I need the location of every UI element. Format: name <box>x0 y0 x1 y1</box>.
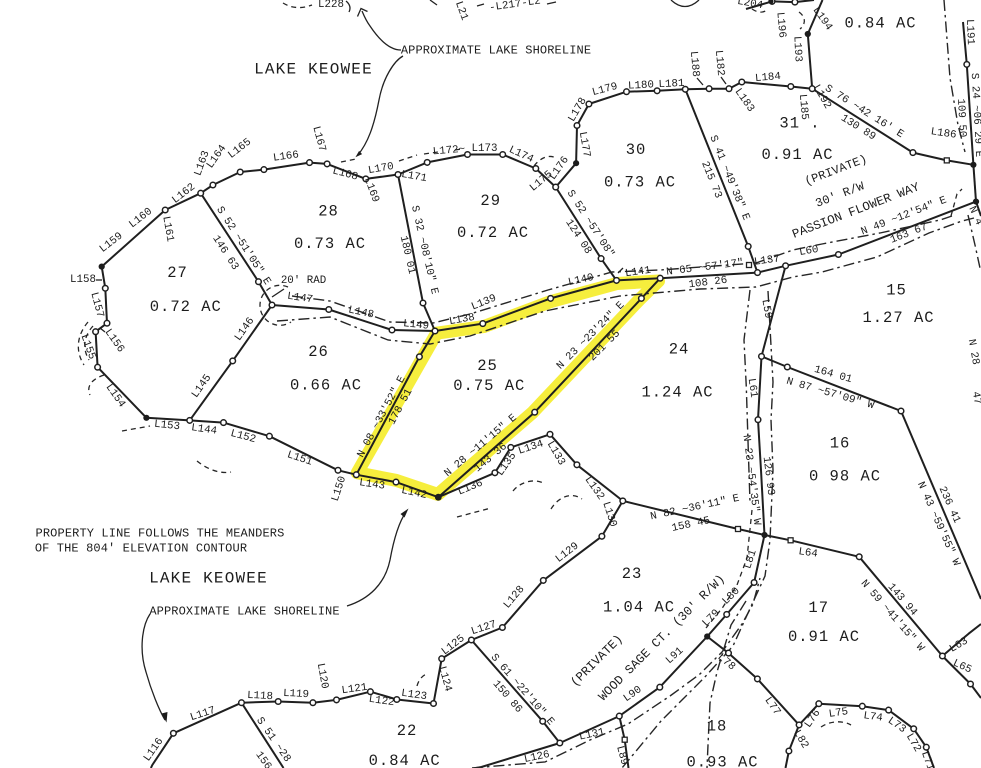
svg-text:L119: L119 <box>283 688 310 701</box>
svg-text:25: 25 <box>477 357 498 375</box>
svg-text:30: 30 <box>626 141 647 159</box>
svg-text:16: 16 <box>830 435 851 453</box>
svg-text:24: 24 <box>669 341 690 359</box>
svg-text:APPROXIMATE LAKE SHORELINE: APPROXIMATE LAKE SHORELINE <box>149 605 339 619</box>
svg-text:0.91 AC: 0.91 AC <box>761 146 833 164</box>
svg-text:L191: L191 <box>963 19 976 45</box>
svg-text:0.72 AC: 0.72 AC <box>457 224 529 242</box>
svg-text:L158: L158 <box>70 274 96 286</box>
svg-text:1.27 AC: 1.27 AC <box>862 309 934 327</box>
svg-text:0.93 AC: 0.93 AC <box>686 754 758 768</box>
svg-text:23: 23 <box>622 565 643 583</box>
svg-text:LAKE KEOWEE: LAKE KEOWEE <box>149 570 268 588</box>
svg-text:0.72 AC: 0.72 AC <box>150 298 222 316</box>
svg-text:0.84 AC: 0.84 AC <box>844 15 916 33</box>
svg-text:0.75 AC: 0.75 AC <box>453 377 525 395</box>
svg-text:L181: L181 <box>658 78 685 91</box>
svg-text:0 98 AC: 0 98 AC <box>809 468 881 486</box>
svg-text:18: 18 <box>707 718 728 736</box>
svg-text:0.73 AC: 0.73 AC <box>294 235 366 253</box>
svg-text:OF THE 804' ELEVATION CONTOUR: OF THE 804' ELEVATION CONTOUR <box>35 542 247 556</box>
svg-text:17: 17 <box>808 599 829 617</box>
svg-text:1.24 AC: 1.24 AC <box>641 384 713 402</box>
svg-text:0.84 AC: 0.84 AC <box>369 752 441 768</box>
svg-text:0.66 AC: 0.66 AC <box>290 377 362 395</box>
svg-text:L184: L184 <box>755 71 782 85</box>
svg-text:L228: L228 <box>318 0 344 11</box>
svg-text:L196: L196 <box>773 12 787 39</box>
svg-text:29: 29 <box>480 192 501 210</box>
svg-text:0.73 AC: 0.73 AC <box>604 174 676 192</box>
svg-text:26: 26 <box>308 343 329 361</box>
svg-text:L193: L193 <box>790 36 803 63</box>
svg-text:L185: L185 <box>796 94 810 121</box>
svg-text:15: 15 <box>886 282 907 300</box>
svg-text:0.91 AC: 0.91 AC <box>788 628 860 646</box>
svg-text:27: 27 <box>167 264 188 282</box>
svg-text:L118: L118 <box>247 690 274 703</box>
svg-text:L182: L182 <box>712 50 726 77</box>
svg-text:L188: L188 <box>687 51 701 78</box>
svg-text:PROPERTY LINE FOLLOWS THE MEAN: PROPERTY LINE FOLLOWS THE MEANDERS <box>36 527 285 541</box>
svg-text:28: 28 <box>318 203 339 221</box>
svg-text:20' RAD: 20' RAD <box>281 275 326 287</box>
svg-text:L173: L173 <box>472 143 498 155</box>
svg-text:1.04 AC: 1.04 AC <box>603 599 675 617</box>
svg-text:APPROXIMATE LAKE SHORELINE: APPROXIMATE LAKE SHORELINE <box>401 44 591 58</box>
svg-text:22: 22 <box>397 722 418 740</box>
svg-text:L180: L180 <box>628 79 655 92</box>
svg-text:LAKE KEOWEE: LAKE KEOWEE <box>254 61 373 79</box>
